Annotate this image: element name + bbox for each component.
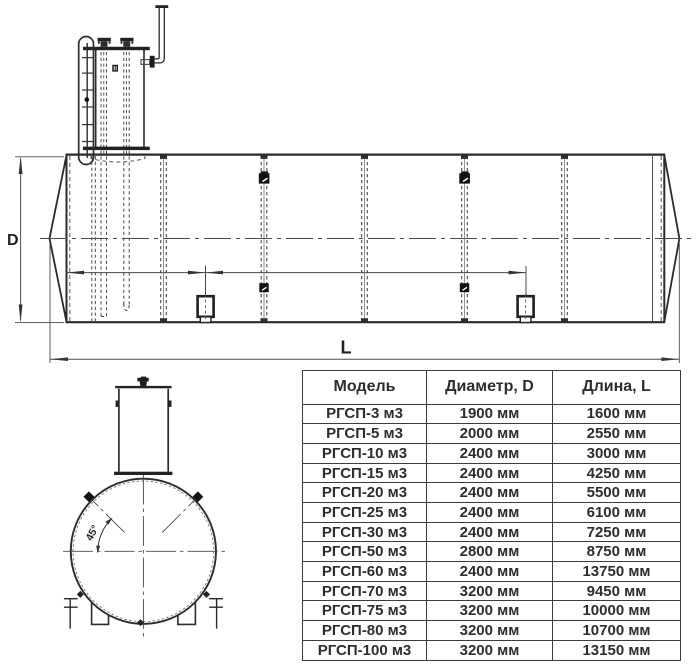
svg-text:D: D bbox=[7, 232, 19, 249]
svg-text:L: L bbox=[341, 338, 352, 358]
